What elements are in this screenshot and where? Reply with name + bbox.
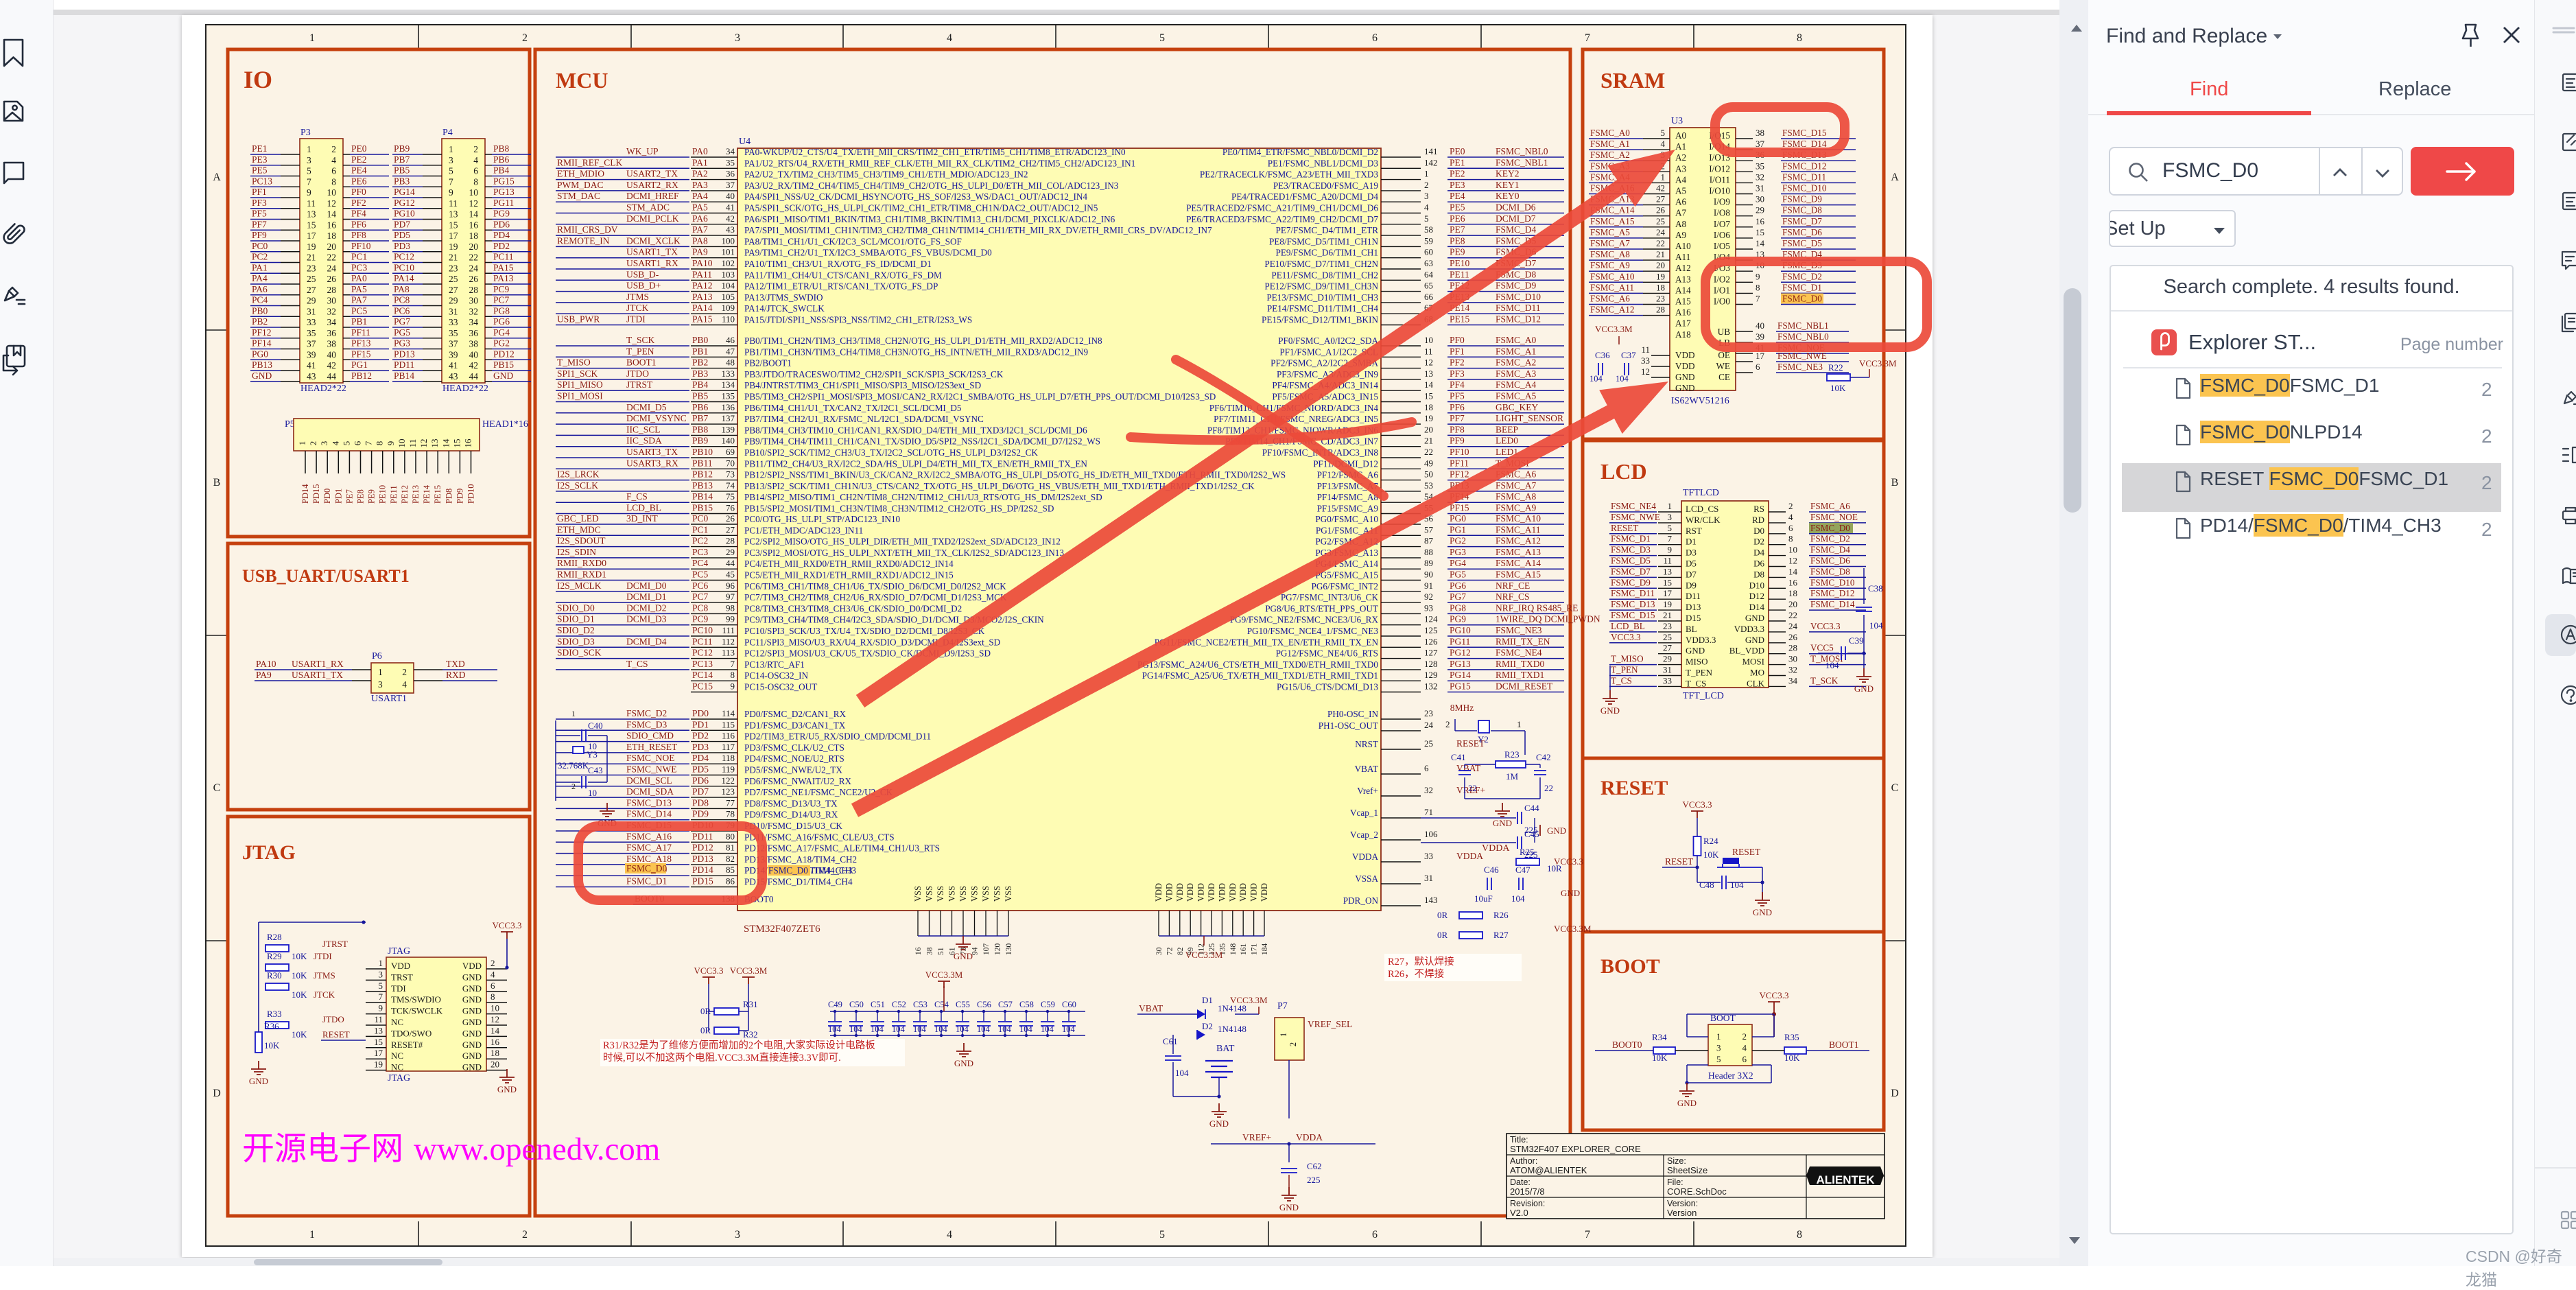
svg-text:PC10: PC10 [394, 262, 414, 272]
svg-text:PB11: PB11 [692, 458, 713, 468]
svg-text:R27，默认焊接: R27，默认焊接 [1388, 956, 1454, 967]
svg-text:CLK: CLK [1747, 678, 1765, 688]
svg-text:FSMC_D10: FSMC_D10 [1496, 292, 1541, 302]
svg-text:PG13: PG13 [493, 187, 515, 197]
svg-text:10: 10 [491, 1003, 499, 1013]
svg-text:PD14: PD14 [300, 484, 310, 504]
svg-text:32: 32 [1424, 785, 1433, 795]
svg-text:PD5/FSMC_NWE/U2_TX: PD5/FSMC_NWE/U2_TX [744, 765, 842, 775]
svg-text:I2S_SCLK: I2S_SCLK [557, 480, 598, 491]
svg-text:96: 96 [726, 580, 735, 591]
svg-text:FSMC_D9: FSMC_D9 [1782, 194, 1822, 204]
svg-text:Author:: Author: [1510, 1156, 1537, 1166]
svg-text:PD2/TIM3_ETR/U5_RX/SDIO_CMD/DC: PD2/TIM3_ETR/U5_RX/SDIO_CMD/DCMI_D11 [744, 731, 931, 742]
svg-text:HEAD2*22: HEAD2*22 [442, 384, 488, 394]
svg-text:D1: D1 [1202, 995, 1213, 1005]
svg-text:35: 35 [1756, 161, 1764, 171]
svg-text:VCC3.3: VCC3.3 [493, 920, 522, 930]
svg-text:78: 78 [726, 809, 735, 819]
svg-text:FSMC_A1: FSMC_A1 [1590, 139, 1630, 149]
svg-text:PA11: PA11 [692, 269, 712, 279]
svg-text:42: 42 [726, 213, 735, 224]
svg-text:C45: C45 [1524, 829, 1539, 839]
svg-text:3: 3 [1716, 1043, 1721, 1053]
svg-text:161: 161 [1240, 943, 1248, 956]
svg-text:D9: D9 [1686, 580, 1697, 590]
svg-text:PG14: PG14 [394, 187, 415, 197]
svg-text:77: 77 [726, 797, 735, 808]
svg-text:WE: WE [1716, 361, 1730, 371]
svg-text:C60: C60 [1062, 1000, 1076, 1009]
svg-text:PE11: PE11 [389, 485, 399, 504]
svg-text:4: 4 [947, 32, 952, 44]
svg-text:PF7: PF7 [1450, 413, 1465, 423]
svg-text:104: 104 [892, 1024, 906, 1034]
svg-text:LCD_BL: LCD_BL [626, 503, 661, 513]
svg-text:GND: GND [462, 972, 482, 982]
svg-text:A16: A16 [1675, 307, 1691, 318]
svg-text:PA6/SPI1_MISO/TIM1_BKIN/TIM3_C: PA6/SPI1_MISO/TIM1_BKIN/TIM3_CH1/TIM8_BK… [744, 214, 1115, 224]
svg-text:PB8/TIM4_CH3/TIM10_CH1/CAN1_RX: PB8/TIM4_CH3/TIM10_CH1/CAN1_RX/SDIO_D4/E… [744, 425, 1087, 435]
svg-text:DCMI_RESET: DCMI_RESET [1496, 681, 1553, 692]
svg-text:PA0: PA0 [692, 146, 708, 156]
svg-text:PF1: PF1 [1450, 346, 1465, 356]
svg-text:F_CS: F_CS [626, 491, 648, 502]
svg-text:PC4: PC4 [692, 558, 709, 568]
svg-text:PC8/TIM3_CH3/TIM8_CH3/U6_CK/SD: PC8/TIM3_CH3/TIM8_CH3/U6_CK/SDIO_D0/DCMI… [744, 603, 962, 613]
svg-text:T_CS: T_CS [1611, 675, 1632, 685]
svg-text:USART1_RX: USART1_RX [292, 659, 344, 669]
svg-text:28: 28 [469, 285, 479, 295]
svg-text:D1: D1 [1686, 537, 1697, 547]
svg-text:P4: P4 [442, 128, 453, 138]
svg-text:BAT: BAT [1216, 1044, 1235, 1054]
svg-text:USART3_RX: USART3_RX [626, 458, 678, 468]
svg-text:136: 136 [722, 402, 735, 412]
svg-text:PF14: PF14 [252, 338, 272, 349]
svg-text:SDIO_D3: SDIO_D3 [557, 636, 595, 646]
svg-text:PA13: PA13 [493, 273, 514, 283]
svg-text:PE9: PE9 [1450, 247, 1465, 257]
svg-text:FSMC_D10: FSMC_D10 [1810, 577, 1855, 587]
svg-text:PD8/FSMC_D13/U3_TX: PD8/FSMC_D13/U3_TX [744, 798, 838, 808]
svg-text:PD13: PD13 [692, 854, 713, 864]
svg-text:19: 19 [1656, 271, 1665, 281]
svg-text:C43: C43 [588, 765, 603, 775]
svg-text:PB2: PB2 [692, 357, 708, 368]
svg-text:15: 15 [1663, 577, 1672, 587]
svg-text:R31/R32是为了维修方便而增加的2个电阻,大家实际设计电: R31/R32是为了维修方便而增加的2个电阻,大家实际设计电路板 [603, 1039, 875, 1051]
svg-text:VCC3.3M: VCC3.3M [1554, 924, 1592, 934]
svg-text:FSMC_D2: FSMC_D2 [1810, 534, 1850, 544]
svg-text:38: 38 [926, 947, 934, 955]
svg-text:PC5: PC5 [692, 570, 709, 580]
svg-text:PA13: PA13 [692, 292, 713, 302]
svg-text:107: 107 [982, 943, 991, 956]
svg-text:PD6/FSMC_NWAIT/U2_RX: PD6/FSMC_NWAIT/U2_RX [744, 776, 852, 786]
svg-text:Header 3X2: Header 3X2 [1708, 1070, 1753, 1081]
svg-text:RS: RS [1753, 504, 1764, 514]
svg-text:NRF_IRQ RS485_RE: NRF_IRQ RS485_RE [1496, 602, 1578, 613]
svg-text:1: 1 [378, 667, 383, 677]
svg-text:PE2: PE2 [351, 154, 367, 165]
svg-text:103: 103 [722, 269, 735, 279]
svg-text:104: 104 [1019, 1024, 1033, 1034]
svg-text:20: 20 [1424, 424, 1433, 434]
svg-text:PG7: PG7 [1450, 591, 1466, 602]
svg-text:GND: GND [1745, 613, 1764, 623]
svg-text:JTRST: JTRST [322, 939, 348, 949]
svg-text:PF15: PF15 [351, 349, 371, 359]
svg-text:8MHz: 8MHz [1450, 703, 1474, 713]
svg-text:PB6/TIM4_CH1/U1_TX/CAN2_TX/I2C: PB6/TIM4_CH1/U1_TX/CAN2_TX/I2C1_SCL/DCMI… [744, 403, 962, 413]
svg-text:57: 57 [1424, 524, 1434, 535]
svg-text:PB14: PB14 [394, 371, 414, 381]
svg-text:18: 18 [327, 231, 337, 241]
svg-text:VCC3.3M: VCC3.3M [730, 965, 768, 976]
svg-text:31: 31 [1424, 873, 1433, 883]
svg-text:PE15: PE15 [433, 485, 442, 504]
svg-text:116: 116 [722, 731, 735, 741]
svg-text:A10: A10 [1675, 241, 1691, 251]
svg-text:Y3: Y3 [587, 749, 598, 760]
svg-text:WR/CLK: WR/CLK [1686, 515, 1721, 525]
svg-text:27: 27 [1663, 643, 1673, 653]
svg-text:V2.0: V2.0 [1510, 1208, 1528, 1218]
svg-text:UB: UB [1718, 327, 1731, 337]
svg-text:RXD: RXD [446, 670, 466, 680]
svg-text:I/O10: I/O10 [1709, 186, 1730, 196]
svg-text:PD13: PD13 [394, 349, 415, 359]
svg-text:11: 11 [1663, 556, 1672, 566]
svg-text:9: 9 [386, 441, 396, 446]
svg-text:PA11/TIM1_CH4/U1_CTS/CAN1_RX/O: PA11/TIM1_CH4/U1_CTS/CAN1_RX/OTG_FS_DM [744, 270, 942, 280]
svg-text:PC6: PC6 [692, 580, 709, 591]
svg-text:FSMC_D2: FSMC_D2 [626, 708, 667, 718]
svg-text:5: 5 [1661, 128, 1666, 138]
svg-text:USB_D+: USB_D+ [626, 281, 661, 291]
svg-text:PG6/FSMC_INT2: PG6/FSMC_INT2 [1312, 581, 1378, 591]
svg-text:FSMC_A13: FSMC_A13 [1496, 547, 1541, 557]
svg-text:12: 12 [1641, 366, 1650, 377]
svg-text:File:: File: [1667, 1177, 1683, 1187]
svg-text:PF14/FSMC_A8: PF14/FSMC_A8 [1317, 492, 1379, 502]
svg-text:PD5: PD5 [394, 230, 410, 240]
svg-text:PB3: PB3 [692, 368, 709, 379]
svg-text:42: 42 [1656, 183, 1665, 193]
svg-text:RESET: RESET [1600, 777, 1668, 799]
svg-text:44: 44 [327, 371, 337, 382]
svg-text:PG4: PG4 [1450, 558, 1466, 568]
svg-text:4: 4 [1661, 139, 1666, 149]
svg-text:5: 5 [1159, 1229, 1165, 1241]
svg-text:PE14: PE14 [422, 484, 432, 504]
svg-text:PG8: PG8 [1450, 602, 1466, 613]
svg-text:PA2/U2_TX/TIM2_CH3/TIM5_CH3/TI: PA2/U2_TX/TIM2_CH3/TIM5_CH3/TIM9_CH1/ETH… [744, 169, 1028, 180]
svg-text:FSMC_A7: FSMC_A7 [1496, 480, 1537, 491]
svg-text:104: 104 [1041, 1024, 1054, 1034]
svg-text:FSMC_A16: FSMC_A16 [626, 831, 672, 841]
svg-text:14: 14 [1788, 566, 1798, 576]
svg-text:USB_UART/USART1: USB_UART/USART1 [242, 566, 410, 586]
svg-text:I2S_SDOUT: I2S_SDOUT [557, 536, 606, 546]
svg-text:FSMC_D8: FSMC_D8 [1810, 566, 1850, 576]
svg-text:PD10: PD10 [466, 484, 476, 504]
svg-text:GND: GND [1675, 383, 1695, 393]
svg-text:BL: BL [1686, 624, 1697, 634]
svg-text:12: 12 [418, 439, 429, 448]
svg-text:DCMI_D5: DCMI_D5 [626, 402, 667, 412]
svg-text:PB3: PB3 [394, 176, 410, 186]
svg-text:10K: 10K [1652, 1053, 1668, 1063]
svg-text:PG15: PG15 [493, 176, 515, 186]
svg-text:3: 3 [307, 155, 311, 165]
svg-text:PE8: PE8 [1450, 235, 1465, 246]
svg-text:22: 22 [1656, 238, 1665, 248]
svg-text:VDD: VDD [462, 961, 482, 971]
svg-text:PF13: PF13 [351, 338, 371, 349]
svg-text:PD8: PD8 [444, 489, 453, 504]
svg-text:/TIM4_CH3: /TIM4_CH3 [811, 865, 856, 876]
svg-text:81: 81 [726, 843, 735, 853]
svg-text:10K: 10K [292, 989, 307, 1000]
svg-text:VDD: VDD [1217, 883, 1227, 902]
svg-text:C54: C54 [934, 1000, 949, 1009]
svg-text:GND: GND [1675, 372, 1695, 382]
svg-text:RESET: RESET [1611, 523, 1638, 533]
svg-text:C47: C47 [1515, 865, 1531, 875]
svg-text:PE1: PE1 [1450, 157, 1465, 167]
svg-text:PF4: PF4 [351, 209, 366, 219]
svg-text:LCD_BL: LCD_BL [1611, 621, 1645, 631]
svg-text:FSMC_NWE: FSMC_NWE [626, 764, 677, 775]
svg-text:T_PEN: T_PEN [1611, 665, 1638, 675]
svg-text:8: 8 [1797, 32, 1802, 44]
svg-text:VCC3.3M: VCC3.3M [1185, 950, 1223, 960]
svg-text:1: 1 [379, 958, 383, 968]
svg-text:PF12: PF12 [1450, 469, 1469, 480]
svg-text:5: 5 [379, 981, 383, 991]
svg-text:21: 21 [1663, 610, 1672, 620]
svg-text:27: 27 [449, 285, 458, 295]
svg-text:RMII_REF_CLK: RMII_REF_CLK [557, 157, 623, 167]
svg-text:JTDO: JTDO [626, 368, 649, 379]
svg-text:1: 1 [1661, 172, 1666, 182]
svg-text:T_CS: T_CS [626, 659, 648, 669]
svg-text:SDIO_SCK: SDIO_SCK [557, 648, 602, 658]
svg-text:10: 10 [1788, 545, 1797, 555]
svg-text:10K: 10K [292, 951, 307, 961]
svg-text:NRST: NRST [1355, 739, 1378, 749]
svg-text:PF11: PF11 [351, 327, 370, 338]
svg-text:ETH_MDIO: ETH_MDIO [557, 169, 604, 179]
svg-text:GND: GND [462, 1028, 482, 1038]
svg-text:PA6: PA6 [252, 284, 268, 294]
svg-text:GND: GND [1493, 818, 1512, 828]
svg-text:PA8: PA8 [692, 235, 708, 246]
svg-text:143: 143 [1424, 895, 1438, 905]
svg-text:18: 18 [1788, 588, 1797, 598]
svg-text:JTRST: JTRST [626, 379, 653, 390]
svg-text:119: 119 [722, 764, 735, 775]
svg-text:PG6: PG6 [493, 316, 510, 327]
svg-text:C39: C39 [1849, 635, 1864, 646]
svg-text:2: 2 [473, 144, 478, 154]
svg-text:59: 59 [1424, 235, 1433, 246]
svg-text:PD8: PD8 [692, 797, 709, 808]
svg-text:FSMC_D13: FSMC_D13 [626, 797, 672, 808]
svg-text:FSMC_D12: FSMC_D12 [1810, 588, 1855, 598]
svg-text:VCC3.3M: VCC3.3M [925, 970, 963, 980]
svg-text:FSMC_D12: FSMC_D12 [1782, 161, 1827, 171]
svg-text:5: 5 [1424, 213, 1429, 224]
svg-text:12: 12 [327, 198, 337, 209]
svg-text:PF5: PF5 [252, 209, 267, 219]
svg-text:18: 18 [491, 1048, 499, 1058]
svg-text:FSMC_D1: FSMC_D1 [626, 876, 667, 887]
svg-text:20: 20 [469, 242, 479, 252]
svg-text:98: 98 [726, 602, 735, 613]
svg-text:PA1: PA1 [692, 157, 708, 167]
svg-text:28: 28 [1656, 305, 1665, 315]
svg-text:0R: 0R [1437, 930, 1448, 940]
svg-text:C48: C48 [1699, 880, 1714, 890]
svg-text:12: 12 [469, 198, 479, 209]
svg-text:2: 2 [1788, 501, 1793, 511]
svg-text:I/O8: I/O8 [1714, 208, 1731, 218]
svg-text:C42: C42 [1536, 752, 1551, 762]
svg-text:PG5/FSMC_A15: PG5/FSMC_A15 [1315, 570, 1378, 580]
svg-text:RMII_TX_EN: RMII_TX_EN [1496, 636, 1550, 646]
svg-text:PA3/U2_RX/TIM2_CH4/TIM5_CH4/TI: PA3/U2_RX/TIM2_CH4/TIM5_CH4/TIM9_CH2/OTG… [744, 180, 1119, 191]
svg-text:PE10/FSMC_D7/TIM1_CH2N: PE10/FSMC_D7/TIM1_CH2N [1264, 259, 1378, 269]
svg-text:104: 104 [998, 1024, 1012, 1034]
svg-text:T_MISO: T_MISO [557, 357, 591, 368]
svg-text:39: 39 [449, 349, 458, 360]
svg-text:29: 29 [1756, 205, 1764, 215]
svg-text:FSMC_A17: FSMC_A17 [626, 843, 672, 853]
svg-text:PB10/SPI2_SCK/TIM2_CH3/U3_TX/I: PB10/SPI2_SCK/TIM2_CH3/U3_TX/I2C2_SCL/OT… [744, 447, 1038, 458]
svg-text:PG0/FSMC_A10: PG0/FSMC_A10 [1315, 514, 1378, 524]
svg-text:RMII_TXD0: RMII_TXD0 [1496, 659, 1544, 669]
svg-text:15: 15 [1756, 227, 1764, 237]
svg-text:148: 148 [1229, 943, 1238, 956]
svg-text:PF0: PF0 [1450, 335, 1465, 345]
svg-text:SPI1_MOSI: SPI1_MOSI [557, 391, 603, 401]
svg-text:120: 120 [994, 943, 1002, 956]
svg-text:A13: A13 [1675, 274, 1691, 284]
svg-text:66: 66 [1424, 292, 1434, 302]
svg-text:I/O7: I/O7 [1714, 219, 1731, 229]
svg-text:P3: P3 [300, 128, 311, 138]
svg-text:23: 23 [307, 263, 316, 273]
svg-text:GBC_LED: GBC_LED [557, 513, 599, 524]
svg-text:4: 4 [331, 155, 336, 165]
svg-text:NC: NC [391, 1062, 403, 1072]
svg-text:VREF_SEL: VREF_SEL [1308, 1019, 1352, 1029]
svg-text:VCC3.3M: VCC3.3M [1595, 324, 1633, 334]
svg-text:PD2: PD2 [493, 241, 510, 251]
svg-text:Size:: Size: [1667, 1156, 1686, 1166]
svg-text:JTAG: JTAG [242, 841, 296, 864]
svg-text:9: 9 [1668, 545, 1673, 555]
svg-text:PC8: PC8 [692, 602, 709, 613]
svg-text:PD15: PD15 [311, 484, 321, 504]
svg-text:6: 6 [1788, 523, 1793, 533]
svg-text:8: 8 [375, 441, 385, 446]
svg-text:PD1: PD1 [692, 719, 709, 729]
svg-text:92: 92 [1424, 591, 1433, 602]
svg-text:1WIRE_DQ DCMI_PWDN: 1WIRE_DQ DCMI_PWDN [1496, 614, 1600, 624]
svg-text:86: 86 [726, 876, 735, 887]
svg-text:PA10: PA10 [692, 258, 713, 268]
svg-text:GND: GND [1547, 825, 1566, 836]
svg-text:C37: C37 [1621, 350, 1636, 360]
svg-text:11: 11 [307, 198, 316, 209]
svg-text:A18: A18 [1675, 329, 1691, 340]
svg-text:D10: D10 [1749, 580, 1764, 590]
svg-text:26: 26 [327, 274, 337, 284]
svg-text:PC6: PC6 [394, 305, 410, 316]
svg-text:PE12: PE12 [400, 485, 410, 504]
svg-text:20: 20 [491, 1059, 499, 1070]
svg-text:VCC3.3: VCC3.3 [1760, 990, 1789, 1000]
svg-text:JTAG: JTAG [388, 946, 410, 957]
svg-text:8: 8 [473, 176, 478, 187]
svg-text:PC13: PC13 [252, 176, 272, 186]
svg-text:111: 111 [722, 625, 735, 635]
svg-text:60: 60 [1424, 247, 1433, 257]
svg-text:76: 76 [726, 503, 735, 513]
svg-text:DCMI_D3: DCMI_D3 [626, 614, 667, 624]
svg-text:FSMC_D14: FSMC_D14 [1782, 139, 1827, 149]
svg-text:10K: 10K [292, 970, 307, 981]
svg-text:SDIO_D2: SDIO_D2 [557, 625, 595, 635]
svg-text:13: 13 [429, 439, 440, 448]
svg-text:Vcap_1: Vcap_1 [1350, 808, 1378, 818]
svg-text:115: 115 [722, 719, 735, 729]
svg-text:104: 104 [913, 1024, 927, 1034]
svg-text:FSMC_A8: FSMC_A8 [1590, 249, 1630, 259]
svg-text:82: 82 [1177, 947, 1185, 955]
svg-text:D8: D8 [1753, 569, 1764, 579]
svg-text:PE6: PE6 [1450, 213, 1465, 224]
svg-text:FSMC_D6: FSMC_D6 [1810, 556, 1850, 566]
svg-text:HEAD2*22: HEAD2*22 [300, 384, 346, 394]
svg-text:30: 30 [327, 296, 337, 306]
svg-text:64: 64 [1424, 269, 1434, 279]
svg-text:TCK/SWCLK: TCK/SWCLK [391, 1006, 443, 1016]
svg-text:Vref+: Vref+ [1357, 786, 1378, 796]
svg-text:PE7/FSMC_D4/TIM1_ETR: PE7/FSMC_D4/TIM1_ETR [1276, 225, 1379, 235]
svg-text:VDDA: VDDA [1482, 843, 1510, 854]
svg-text:VDD: VDD [1154, 883, 1163, 902]
svg-text:8: 8 [1788, 534, 1793, 544]
svg-text:28: 28 [1788, 643, 1797, 653]
svg-text:PF10: PF10 [1450, 447, 1469, 457]
svg-text:3: 3 [735, 1229, 740, 1241]
svg-text:43: 43 [726, 224, 735, 235]
svg-text:13: 13 [307, 209, 316, 220]
svg-text:PC13: PC13 [692, 659, 713, 669]
svg-text:PA8: PA8 [394, 284, 410, 294]
svg-text:www.openedv.com: www.openedv.com [414, 1131, 660, 1167]
svg-text:26: 26 [726, 513, 735, 524]
svg-text:FSMC_A11: FSMC_A11 [1590, 282, 1634, 292]
svg-text:34: 34 [726, 146, 735, 156]
svg-text:PG2: PG2 [493, 338, 510, 349]
svg-text:FSMC_D9: FSMC_D9 [1496, 281, 1537, 291]
